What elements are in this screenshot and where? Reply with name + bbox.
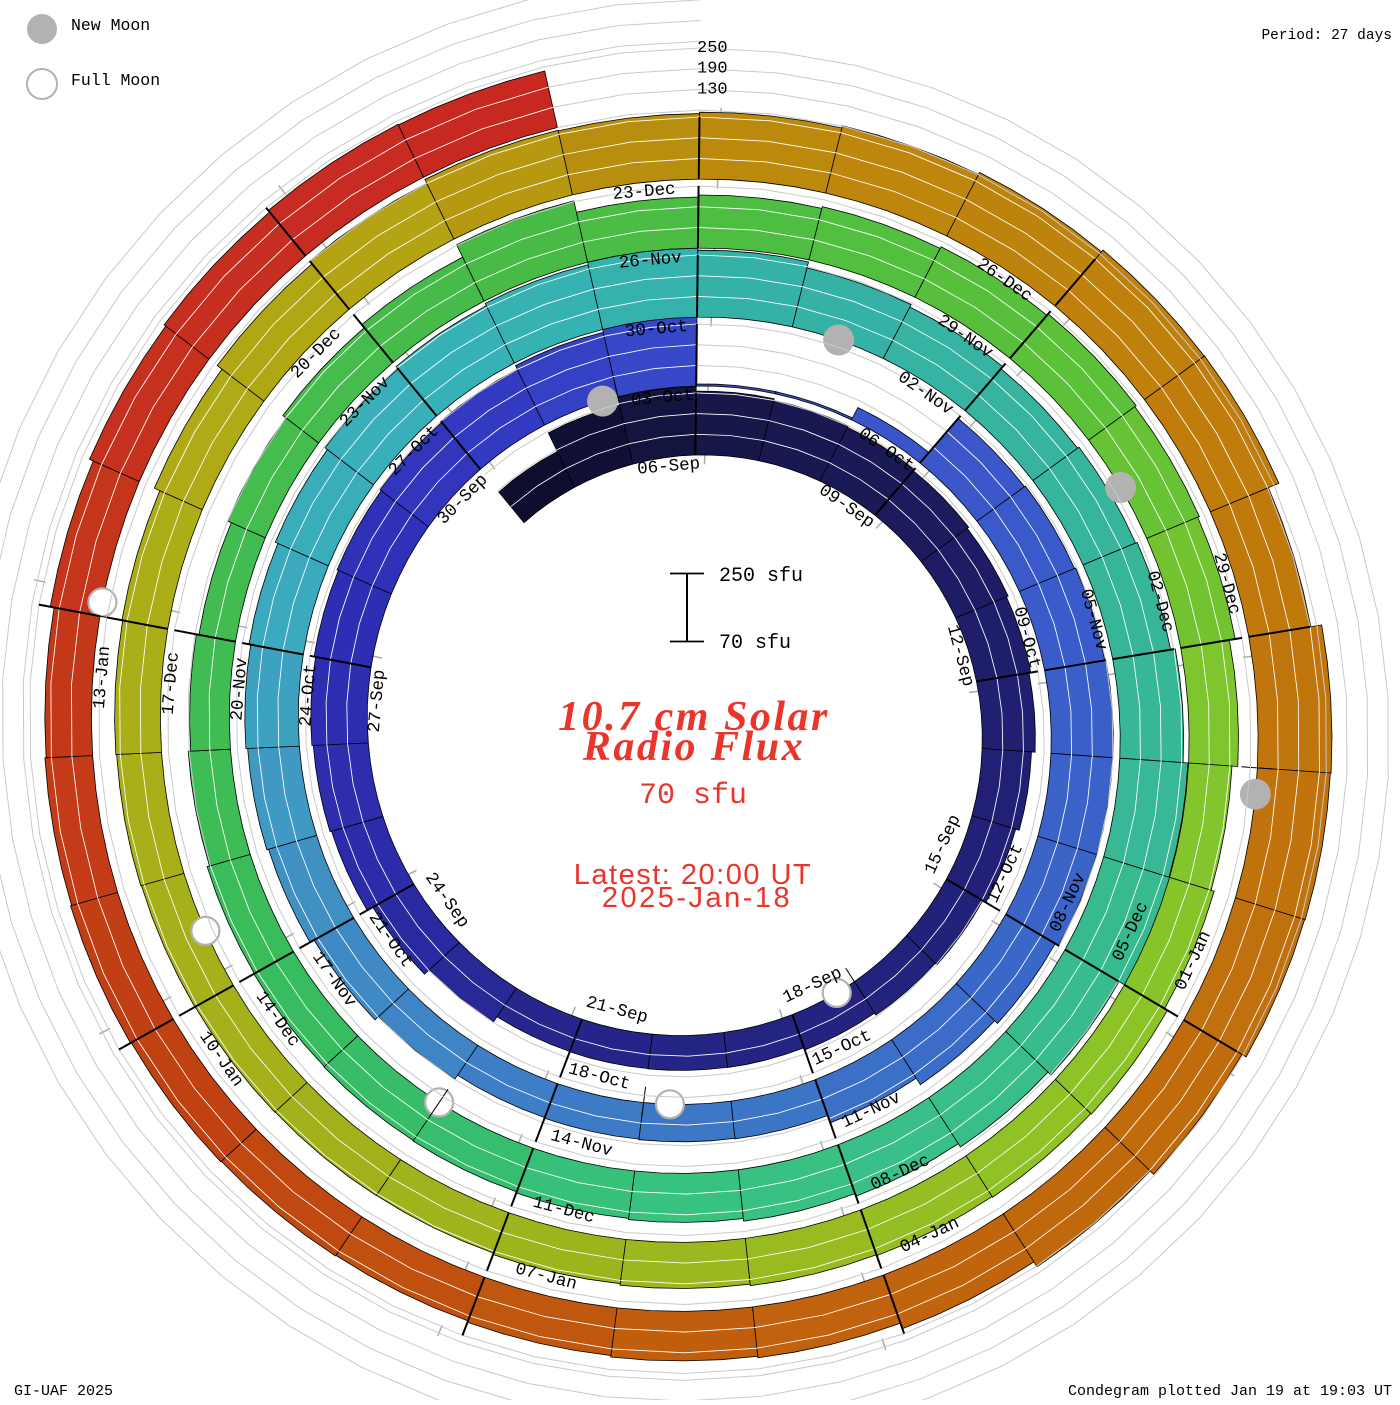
svg-text:GI-UAF 2025: GI-UAF 2025 [14,1383,113,1400]
svg-text:250: 250 [697,39,728,58]
svg-text:Full Moon: Full Moon [71,71,160,90]
svg-text:Period: 27 days: Period: 27 days [1261,28,1392,44]
svg-text:2025-Jan-18: 2025-Jan-18 [602,882,792,914]
svg-text:Condegram plotted Jan 19 at 19: Condegram plotted Jan 19 at 19:03 UT [1068,1383,1392,1400]
svg-text:190: 190 [697,60,728,79]
svg-text:250 sfu: 250 sfu [719,565,803,588]
svg-text:Radio Flux: Radio Flux [582,724,805,770]
svg-text:New Moon: New Moon [71,16,150,35]
svg-text:130: 130 [697,80,728,99]
svg-text:70 sfu: 70 sfu [719,632,791,655]
svg-text:70 sfu: 70 sfu [639,779,747,813]
